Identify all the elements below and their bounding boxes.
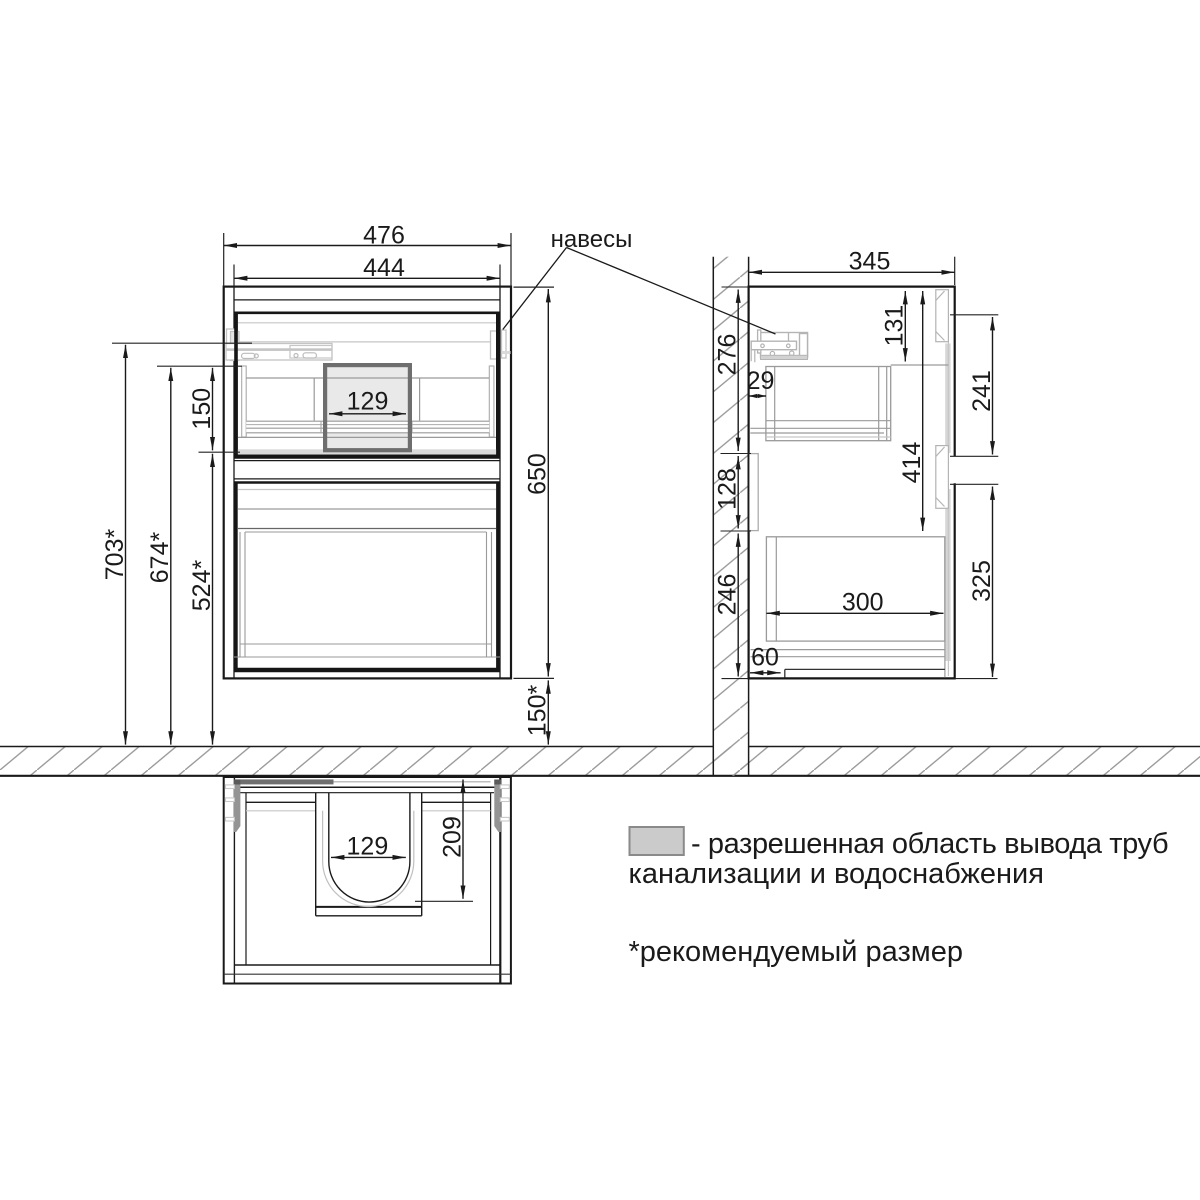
- svg-text:*рекомендуемый размер: *рекомендуемый размер: [629, 936, 963, 968]
- svg-text:29: 29: [747, 367, 775, 395]
- svg-text:150*: 150*: [524, 685, 552, 737]
- svg-text:300: 300: [842, 589, 884, 617]
- svg-text:444: 444: [363, 254, 405, 282]
- svg-text:524*: 524*: [188, 560, 216, 612]
- svg-text:129: 129: [347, 388, 389, 416]
- svg-text:131: 131: [881, 305, 909, 347]
- svg-text:414: 414: [898, 442, 926, 484]
- svg-text:476: 476: [363, 222, 405, 250]
- svg-text:- разрешенная область вывода т: - разрешенная область вывода труб: [691, 828, 1168, 860]
- svg-text:128: 128: [714, 468, 742, 510]
- svg-text:703*: 703*: [101, 529, 129, 581]
- svg-text:209: 209: [438, 816, 466, 858]
- svg-text:канализации и водоснабжения: канализации и водоснабжения: [629, 858, 1044, 890]
- svg-text:навесы: навесы: [551, 226, 633, 253]
- svg-text:129: 129: [347, 833, 389, 861]
- svg-text:345: 345: [849, 248, 891, 276]
- svg-text:241: 241: [968, 370, 996, 412]
- svg-text:650: 650: [524, 453, 552, 495]
- svg-text:150: 150: [188, 388, 216, 430]
- svg-text:276: 276: [714, 334, 742, 376]
- svg-text:246: 246: [714, 574, 742, 616]
- svg-text:60: 60: [751, 644, 779, 672]
- svg-text:674*: 674*: [146, 532, 174, 584]
- svg-text:325: 325: [968, 560, 996, 602]
